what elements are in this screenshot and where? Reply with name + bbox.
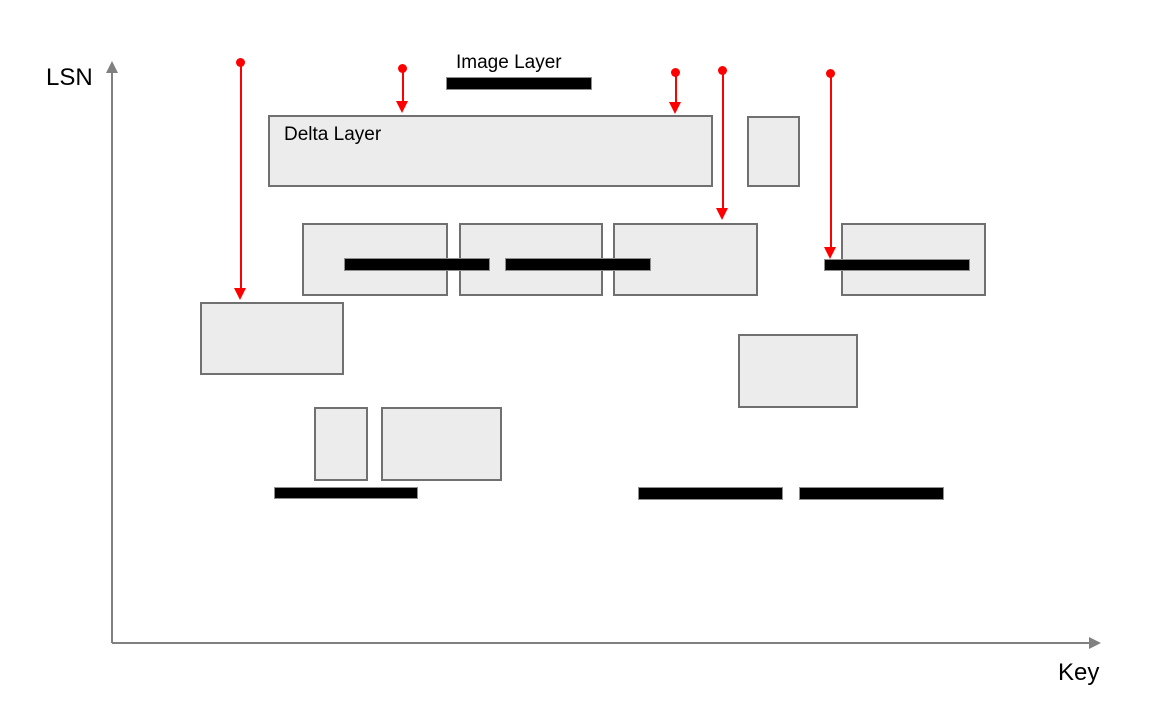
lookup-arrow-4-start-dot	[718, 66, 727, 75]
delta-layer-small-lower-1	[314, 407, 368, 481]
lookup-arrow-5-line	[830, 74, 832, 250]
x-axis-arrowhead-icon	[1089, 637, 1101, 649]
lookup-arrow-4-head-icon	[716, 208, 728, 220]
image-layer-label: Image Layer	[456, 53, 562, 72]
lookup-arrow-3-head-icon	[669, 102, 681, 114]
lookup-arrow-1-start-dot	[236, 58, 245, 67]
lookup-arrow-1-line	[240, 63, 242, 291]
delta-layer-top-right	[747, 116, 800, 187]
lookup-arrow-5-start-dot	[826, 69, 835, 78]
delta-layer-left-lower	[200, 302, 344, 375]
lookup-arrow-2-start-dot	[398, 64, 407, 73]
delta-layer-label: Delta Layer	[284, 125, 381, 144]
image-layer-top	[446, 77, 592, 90]
image-layer-bottom-1	[274, 487, 418, 499]
image-layer-bottom-3	[799, 487, 944, 500]
x-axis	[112, 642, 1090, 644]
y-axis	[111, 72, 113, 643]
image-layer-mid-1	[344, 258, 490, 271]
diagram-canvas: LSN Key Image Layer Delta Layer	[0, 0, 1175, 704]
lookup-arrow-3-start-dot	[671, 68, 680, 77]
x-axis-label: Key	[1058, 661, 1099, 685]
delta-layer-right-lower	[738, 334, 858, 408]
delta-layer-small-lower-2	[381, 407, 502, 481]
y-axis-arrowhead-icon	[106, 61, 118, 73]
lookup-arrow-2-head-icon	[396, 101, 408, 113]
lookup-arrow-2-line	[402, 69, 404, 104]
image-layer-mid-2	[505, 258, 651, 271]
image-layer-mid-3	[824, 259, 970, 271]
image-layer-bottom-2	[638, 487, 783, 500]
lookup-arrow-3-line	[675, 73, 677, 105]
y-axis-label: LSN	[46, 66, 93, 90]
lookup-arrow-1-head-icon	[234, 288, 246, 300]
lookup-arrow-5-head-icon	[824, 247, 836, 259]
lookup-arrow-4-line	[722, 71, 724, 211]
